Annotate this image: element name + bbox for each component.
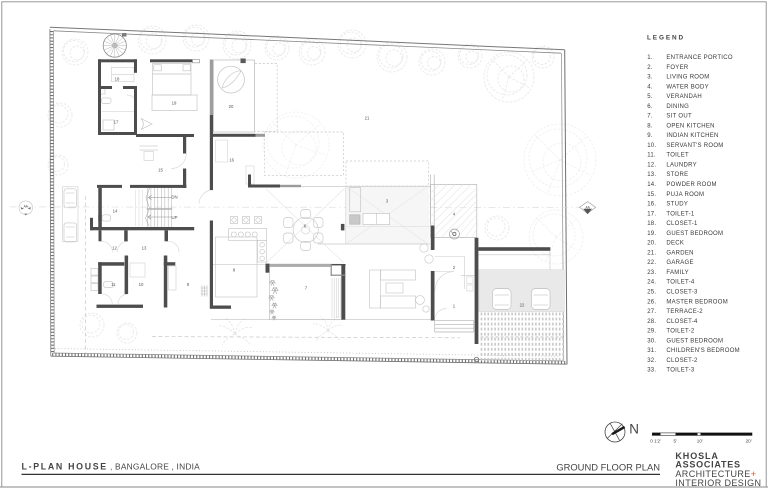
svg-text:2.: 2. (647, 65, 653, 71)
svg-text:SERVANT'S ROOM: SERVANT'S ROOM (666, 143, 723, 149)
svg-text:13: 13 (142, 246, 147, 251)
svg-text:19.: 19. (647, 231, 656, 237)
svg-text:TOILET-2: TOILET-2 (666, 329, 695, 335)
svg-text:20': 20' (746, 438, 752, 443)
svg-text:32.: 32. (647, 358, 656, 364)
svg-text:CLOSET-2: CLOSET-2 (666, 358, 698, 364)
svg-text:1.: 1. (647, 55, 653, 61)
svg-text:DINING: DINING (666, 104, 689, 110)
svg-text:TERRACE-2: TERRACE-2 (666, 309, 703, 315)
svg-text:CLOSET-3: CLOSET-3 (666, 289, 698, 295)
svg-text:INTERIOR DESIGN: INTERIOR DESIGN (675, 478, 761, 488)
svg-text:GARDEN: GARDEN (666, 250, 693, 256)
svg-text:7.: 7. (647, 114, 653, 120)
svg-text:24.: 24. (647, 280, 656, 286)
svg-text:TOILET-4: TOILET-4 (666, 280, 695, 286)
svg-text:5.: 5. (647, 94, 653, 100)
svg-text:10': 10' (697, 438, 703, 443)
svg-text:LIVING ROOM: LIVING ROOM (666, 75, 709, 81)
svg-text:INDIAN KITCHEN: INDIAN KITCHEN (666, 133, 718, 139)
svg-text:13.: 13. (647, 172, 656, 178)
svg-text:16: 16 (229, 158, 234, 163)
svg-text:12: 12 (112, 246, 117, 251)
svg-text:0 1'2': 0 1'2' (650, 438, 661, 443)
svg-text:18.: 18. (647, 221, 656, 227)
svg-text:11: 11 (111, 282, 116, 287)
svg-text:28.: 28. (647, 319, 656, 325)
svg-text:CLOSET-1: CLOSET-1 (666, 221, 698, 227)
svg-text:VERANDAH: VERANDAH (666, 94, 702, 100)
svg-text:FOYER: FOYER (666, 65, 688, 71)
svg-text:ENTRANCE PORTICO: ENTRANCE PORTICO (666, 55, 732, 61)
svg-text:DECK: DECK (666, 241, 684, 247)
svg-text:GUEST BEDROOM: GUEST BEDROOM (666, 338, 723, 344)
svg-text:LEGEND: LEGEND (647, 34, 685, 41)
svg-text:STORE: STORE (666, 172, 688, 178)
svg-text:20.: 20. (647, 241, 656, 247)
svg-text:LAUNDRY: LAUNDRY (666, 162, 697, 168)
svg-text:GROUND FLOOR PLAN: GROUND FLOOR PLAN (556, 461, 660, 472)
svg-text:31.: 31. (647, 348, 656, 354)
svg-text:CLOSET-4: CLOSET-4 (666, 319, 698, 325)
svg-text:GUEST BEDROOM: GUEST BEDROOM (666, 231, 723, 237)
svg-text:10.: 10. (647, 143, 656, 149)
svg-text:GARAGE: GARAGE (666, 260, 693, 266)
svg-text:10: 10 (139, 282, 144, 287)
svg-text:8.: 8. (647, 123, 653, 129)
svg-text:21: 21 (365, 116, 370, 121)
svg-text:, BANGALORE , INDIA: , BANGALORE , INDIA (110, 461, 200, 471)
svg-text:OPEN KITCHEN: OPEN KITCHEN (666, 123, 714, 129)
svg-text:STUDY: STUDY (666, 202, 688, 208)
svg-text:26.: 26. (647, 299, 656, 305)
svg-text:CHILDREN'S BEDROOM: CHILDREN'S BEDROOM (666, 348, 740, 354)
svg-text:PUJA ROOM: PUJA ROOM (666, 192, 704, 198)
svg-text:19: 19 (172, 101, 177, 106)
svg-text:TOILET: TOILET (666, 153, 689, 159)
svg-text:15.: 15. (647, 192, 656, 198)
svg-text:5': 5' (674, 438, 678, 443)
svg-text:14.: 14. (647, 182, 656, 188)
svg-text:22: 22 (520, 303, 525, 308)
svg-text:20: 20 (229, 104, 234, 109)
svg-text:33.: 33. (647, 368, 656, 374)
svg-text:30.: 30. (647, 338, 656, 344)
svg-text:MASTER BEDROOM: MASTER BEDROOM (666, 299, 728, 305)
svg-text:FAMILY: FAMILY (666, 270, 689, 276)
svg-text:11.: 11. (647, 153, 656, 159)
svg-text:12.: 12. (647, 162, 656, 168)
svg-text:9.: 9. (647, 133, 653, 139)
svg-text:27.: 27. (647, 309, 656, 315)
svg-text:POWDER ROOM: POWDER ROOM (666, 182, 716, 188)
svg-text:ASSOCIATES: ASSOCIATES (675, 459, 740, 469)
svg-text:29.: 29. (647, 329, 656, 335)
svg-text:6.: 6. (647, 104, 653, 110)
svg-text:16.: 16. (647, 202, 656, 208)
svg-text:3.: 3. (647, 75, 653, 81)
svg-text:4.: 4. (647, 84, 653, 90)
svg-text:SIT OUT: SIT OUT (666, 114, 692, 120)
svg-text:22.: 22. (647, 260, 656, 266)
svg-text:21.: 21. (647, 250, 656, 256)
svg-text:TOILET-1: TOILET-1 (666, 211, 695, 217)
svg-text:17: 17 (114, 120, 119, 125)
svg-text:WATER BODY: WATER BODY (666, 84, 708, 90)
svg-text:UP: UP (172, 215, 178, 220)
svg-text:23.: 23. (647, 270, 656, 276)
svg-text:L-PLAN HOUSE: L-PLAN HOUSE (22, 461, 108, 471)
svg-text:TOILET-3: TOILET-3 (666, 368, 695, 374)
svg-text:N: N (629, 421, 639, 436)
svg-text:17.: 17. (647, 211, 656, 217)
svg-text:15: 15 (158, 168, 163, 173)
svg-text:DN: DN (171, 195, 177, 200)
svg-text:14: 14 (113, 209, 118, 214)
svg-text:18: 18 (115, 77, 120, 82)
svg-text:25.: 25. (647, 289, 656, 295)
